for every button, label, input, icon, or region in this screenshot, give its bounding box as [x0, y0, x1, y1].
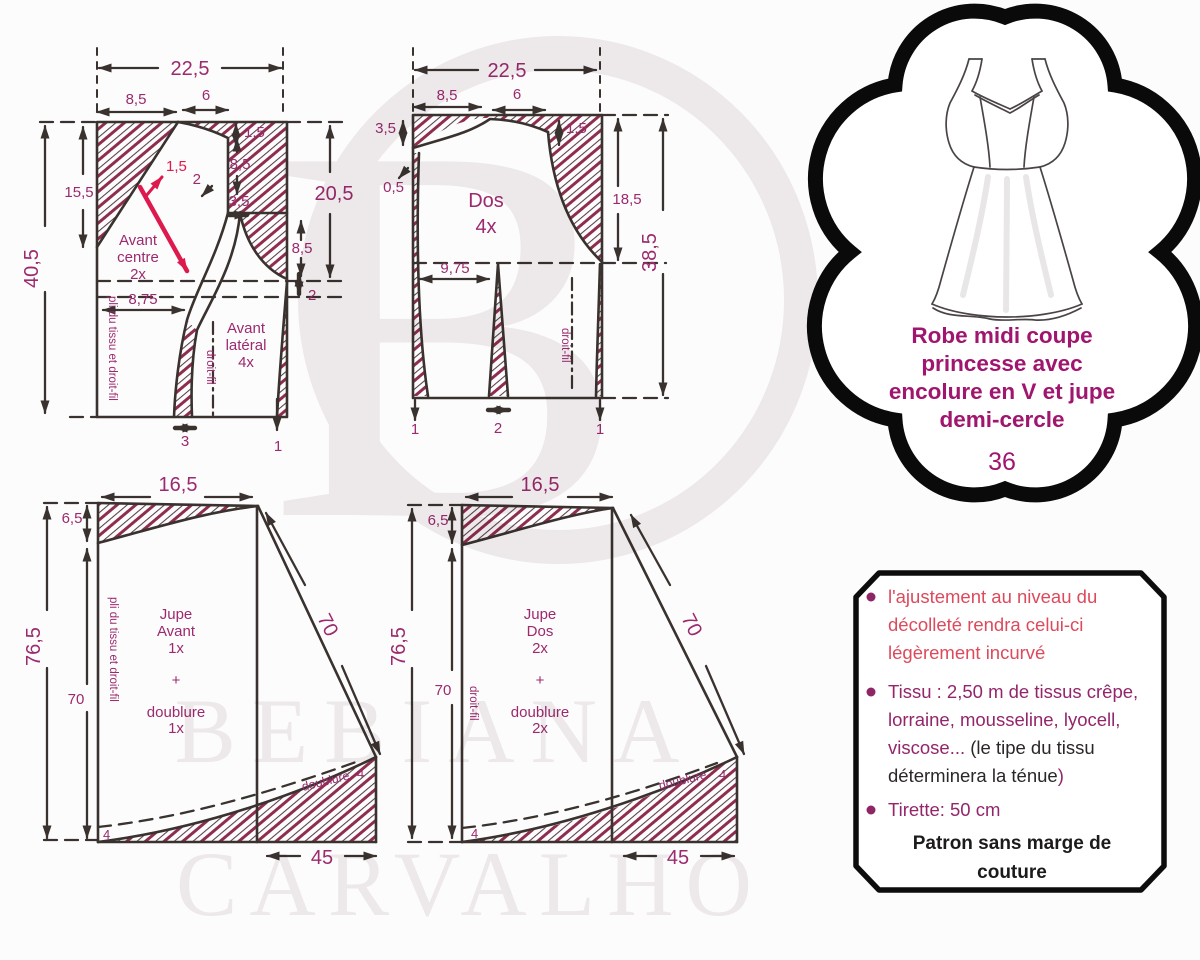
grain-arrow-red-branch [146, 177, 162, 196]
front-center-label-1: Avant [119, 232, 158, 249]
note-1-line-1: l'ajustement au niveau du [888, 586, 1097, 607]
dim-bs-seamlen-d [706, 666, 744, 754]
watermark-name-1: BEBIANA [175, 680, 696, 782]
title-line-2: princesse avec [921, 351, 1082, 376]
footer-line-2: couture [977, 862, 1047, 883]
title-line-3: encolure en V et jupe [889, 379, 1115, 404]
sewing-pattern-sheet: 1,5 22,5 8,5 6 1,5 15,5 40,5 20,5 8,5 3,… [0, 0, 1200, 960]
front-skirt-label-2: Avant [157, 623, 196, 640]
dim-fb-shoulderw: 6 [202, 87, 210, 104]
note-2-line-3: viscose... (le tipe du tissu [888, 737, 1095, 758]
dim-fs-facingh: 6,5 [62, 510, 83, 527]
note-1-line-2: décolleté rendra celui-ci [888, 614, 1083, 635]
note-2-line-3a: viscose... [888, 737, 970, 758]
note-3: Tirette: 50 cm [888, 799, 1000, 820]
watermark-monogram-letter: B [268, 34, 628, 632]
dim-fb-frontlen: 15,5 [64, 184, 93, 201]
front-skirt-fold-label: pli du tissu et droit-fil [107, 597, 119, 702]
front-fold-label: pli du tissu et droit-fil [106, 296, 118, 401]
dim-fb-waistw: 8,75 [128, 291, 157, 308]
dim-fs-sideh: 70 [68, 691, 85, 708]
dim-fb-armholeh: 8,5 [230, 156, 251, 173]
front-side-label-3: 4x [238, 354, 254, 371]
front-skirt-label-1: Jupe [160, 606, 193, 623]
dim-fb-seamnote-arrow [202, 186, 212, 196]
grain-arrow-label: 1,5 [166, 158, 187, 175]
watermark-name-2: CARVALHO [176, 833, 764, 935]
dim-fs-waistw: 16,5 [159, 474, 198, 496]
dress-pleat-center [1006, 179, 1007, 310]
front-side-label-2: latéral [226, 337, 267, 354]
dim-fb-notchw: 3,5 [229, 193, 250, 210]
front-center-label-3: 2x [130, 266, 146, 283]
title-line-1: Robe midi coupe [911, 323, 1092, 348]
note-2-line-4a: déterminera la ténue [888, 765, 1058, 786]
note-1-line-3: légèrement incurvé [888, 642, 1045, 663]
note-2-line-4b: ) [1058, 765, 1064, 786]
dim-fb-seamnote: 2 [193, 171, 201, 188]
pattern-canvas: 1,5 22,5 8,5 6 1,5 15,5 40,5 20,5 8,5 3,… [0, 0, 1200, 960]
dim-fs-totalh: 76,5 [23, 627, 45, 666]
dim-bs-totalh: 76,5 [388, 627, 410, 666]
dim-fb-totalh: 40,5 [21, 249, 43, 288]
front-bodice-princess-seam-2 [192, 213, 240, 417]
dim-bs-hemsa: 4 [719, 767, 726, 782]
front-skirt-label-3: 1x [168, 640, 184, 657]
dim-bs-seamlen: 70 [677, 610, 707, 640]
front-side-label-1: Avant [227, 320, 266, 337]
back-skirt-label-3: 2x [532, 640, 548, 657]
dim-bb-totalh: 38,5 [639, 233, 661, 272]
title-card: Robe midi coupe princesse avec encolure … [814, 11, 1195, 495]
dim-fb-neckw: 8,5 [126, 91, 147, 108]
dim-fb-dartw: 3 [181, 433, 189, 450]
dim-fb-totalw: 22,5 [171, 58, 210, 80]
dim-fb-shouldersa: 1,5 [244, 124, 265, 141]
front-center-label-2: centre [117, 249, 159, 266]
title-line-4: demi-cercle [939, 407, 1064, 432]
note-2-line-1: Tissu : 2,50 m de tissus crêpe, [888, 681, 1138, 702]
bullet-dot-1 [867, 593, 876, 602]
notes-box: l'ajustement au niveau du décolleté rend… [856, 573, 1164, 890]
note-2-line-2: lorraine, mousseline, lyocell, [888, 709, 1120, 730]
footer-line-1: Patron sans marge de [913, 833, 1112, 854]
bullet-dot-3 [867, 806, 876, 815]
front-grain-label: droit-fil [204, 350, 216, 385]
note-2-line-4: déterminera la ténue) [888, 765, 1064, 786]
bullet-dot-2 [867, 688, 876, 697]
pattern-size: 36 [988, 448, 1016, 476]
dim-fs-hemsa-left: 4 [103, 827, 110, 842]
note-2-line-3b: (le tipe du tissu [970, 737, 1094, 758]
